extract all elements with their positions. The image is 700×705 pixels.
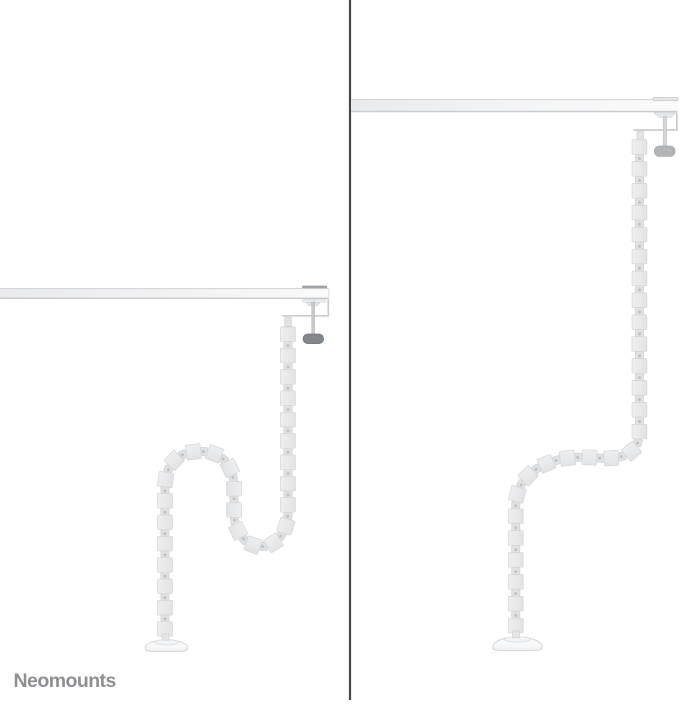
svg-text:Neomounts: Neomounts bbox=[14, 670, 117, 692]
